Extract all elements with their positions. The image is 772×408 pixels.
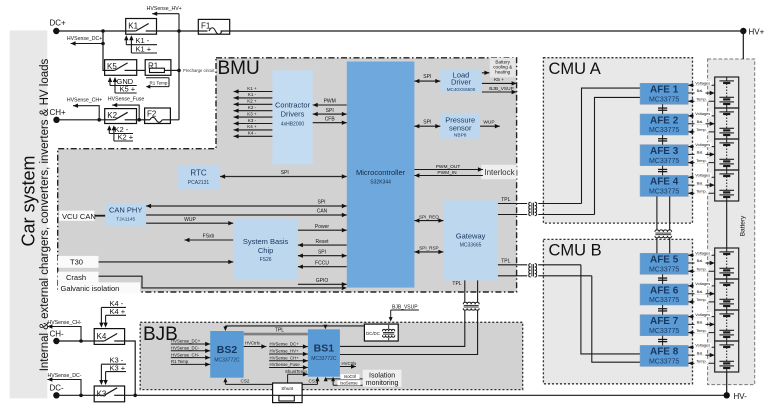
svg-text:K2 +: K2 + <box>247 99 257 104</box>
svg-text:R1 Temp: R1 Temp <box>150 81 168 86</box>
svg-text:HVSense_DC-: HVSense_DC- <box>171 346 200 351</box>
svg-text:Microcontroller: Microcontroller <box>356 168 406 177</box>
svg-text:K1 +: K1 + <box>247 86 257 91</box>
svg-text:AFE 1: AFE 1 <box>650 85 679 96</box>
svg-text:Isolation: Isolation <box>369 372 395 379</box>
svg-text:HVSense_DC-: HVSense_DC- <box>47 373 81 379</box>
svg-text:MC33772C: MC33772C <box>311 356 337 362</box>
svg-text:VCU CAN: VCU CAN <box>62 212 96 221</box>
svg-text:CS2: CS2 <box>241 379 250 384</box>
svg-text:T30: T30 <box>70 258 83 267</box>
svg-text:HV-: HV- <box>734 392 748 401</box>
svg-text:FSxb: FSxb <box>203 234 215 240</box>
svg-text:SPI: SPI <box>326 108 334 114</box>
svg-text:CMU B: CMU B <box>549 242 602 260</box>
svg-text:Drivers: Drivers <box>281 110 305 119</box>
svg-text:Voltages: Voltages <box>695 312 710 317</box>
svg-text:CH+: CH+ <box>50 108 67 117</box>
svg-text:Bal.: Bal. <box>697 320 704 325</box>
svg-text:K2 -: K2 - <box>248 105 257 110</box>
svg-text:Voltages: Voltages <box>695 281 710 286</box>
svg-text:AFE 5: AFE 5 <box>650 255 679 266</box>
svg-text:Temp.: Temp. <box>696 96 707 101</box>
svg-text:CAN: CAN <box>317 209 328 215</box>
svg-text:Voltages: Voltages <box>695 250 710 255</box>
svg-text:Gateway: Gateway <box>456 232 486 241</box>
svg-text:Shunt: Shunt <box>281 386 294 391</box>
svg-text:K3 -: K3 - <box>248 118 257 123</box>
svg-text:TPL: TPL <box>501 258 510 264</box>
svg-text:HVSense_HV+: HVSense_HV+ <box>147 6 182 12</box>
svg-text:PWM_OUT: PWM_OUT <box>436 164 461 170</box>
svg-text:Voltages: Voltages <box>695 173 710 178</box>
svg-text:IsoSense: IsoSense <box>340 380 358 385</box>
svg-text:SPI: SPI <box>423 119 431 125</box>
svg-text:HVSense_HV+: HVSense_HV+ <box>270 349 300 354</box>
svg-text:K2 +: K2 + <box>118 133 134 142</box>
svg-text:AFE 2: AFE 2 <box>650 115 679 126</box>
svg-text:PWM_IN: PWM_IN <box>437 170 457 176</box>
svg-text:Contractor: Contractor <box>275 101 311 110</box>
svg-text:HVCtrls: HVCtrls <box>342 361 357 366</box>
svg-text:SPI_RSP: SPI_RSP <box>419 246 438 251</box>
svg-text:SPI: SPI <box>423 74 431 80</box>
svg-text:System Basis: System Basis <box>243 237 289 246</box>
svg-text:HVSense_CH-: HVSense_CH- <box>47 320 81 326</box>
svg-text:MC33775: MC33775 <box>649 189 679 196</box>
svg-text:Car system: Car system <box>19 155 39 246</box>
svg-text:Bal.: Bal. <box>697 119 704 124</box>
svg-text:SPI: SPI <box>318 249 326 255</box>
svg-text:HVSense_CH-: HVSense_CH- <box>171 352 200 357</box>
svg-text:Voltages: Voltages <box>695 343 710 348</box>
svg-text:Reset: Reset <box>315 239 329 245</box>
svg-text:CH-: CH- <box>50 330 65 339</box>
svg-text:Chip: Chip <box>258 246 273 255</box>
svg-text:Temp.: Temp. <box>696 359 707 364</box>
svg-text:IsoCtrl: IsoCtrl <box>344 374 356 379</box>
svg-text:S32K344: S32K344 <box>370 180 391 186</box>
svg-text:AFE 8: AFE 8 <box>650 347 679 358</box>
svg-text:HVCtrls: HVCtrls <box>245 341 260 346</box>
svg-text:SPI_REQ: SPI_REQ <box>419 214 439 219</box>
svg-text:K1 +: K1 + <box>136 45 152 54</box>
svg-text:AFE 3: AFE 3 <box>650 146 679 157</box>
svg-text:BJB_VSUP: BJB_VSUP <box>489 86 514 92</box>
svg-text:Driver: Driver <box>451 78 472 87</box>
svg-text:K5 +: K5 + <box>120 85 136 94</box>
svg-text:TPL: TPL <box>501 197 510 203</box>
svg-text:AFE 7: AFE 7 <box>650 316 679 327</box>
svg-text:RTC: RTC <box>190 169 207 178</box>
svg-text:CAN PHY: CAN PHY <box>109 206 142 215</box>
svg-text:AFE 4: AFE 4 <box>650 177 679 188</box>
svg-text:K4 -: K4 - <box>248 131 257 136</box>
svg-text:FCCU: FCCU <box>315 260 329 266</box>
svg-text:DC-: DC- <box>50 384 65 393</box>
svg-text:K3: K3 <box>97 389 107 398</box>
svg-text:MC33775: MC33775 <box>649 97 679 104</box>
svg-text:Temp.: Temp. <box>696 297 707 302</box>
svg-text:F1: F1 <box>201 22 211 31</box>
svg-text:SPI: SPI <box>281 170 289 176</box>
svg-text:Bal.: Bal. <box>697 289 704 294</box>
svg-text:K4 +: K4 + <box>247 124 257 129</box>
svg-text:4xHB2000: 4xHB2000 <box>281 122 305 128</box>
svg-text:TPL: TPL <box>275 328 284 334</box>
svg-text:Crash: Crash <box>66 273 86 282</box>
svg-text:HVSense_DC+: HVSense_DC+ <box>270 341 300 346</box>
svg-text:ShuntTemp: ShuntTemp <box>285 369 307 374</box>
svg-text:GPIO: GPIO <box>316 278 329 284</box>
svg-text:K4 +: K4 + <box>110 307 126 316</box>
svg-text:TJA1145: TJA1145 <box>116 217 135 223</box>
svg-text:AFE 6: AFE 6 <box>650 285 679 296</box>
svg-text:PWM: PWM <box>324 99 336 105</box>
svg-text:Voltages: Voltages <box>695 111 710 116</box>
svg-text:R1 Temp: R1 Temp <box>171 359 189 364</box>
svg-text:MC33665: MC33665 <box>460 243 482 249</box>
svg-text:Galvanic isolation: Galvanic isolation <box>61 284 120 293</box>
svg-text:Power: Power <box>315 224 330 230</box>
svg-text:Bal.: Bal. <box>697 150 704 155</box>
svg-text:Voltages: Voltages <box>695 142 710 147</box>
svg-text:DC/DC: DC/DC <box>366 331 380 336</box>
svg-text:HVSense_DC+: HVSense_DC+ <box>171 339 201 344</box>
svg-text:MC33775: MC33775 <box>649 158 679 165</box>
svg-text:Temp.: Temp. <box>696 266 707 271</box>
svg-text:sensor: sensor <box>449 123 472 132</box>
svg-text:HVSense_CH+: HVSense_CH+ <box>67 98 102 104</box>
svg-text:TPL: TPL <box>452 281 461 287</box>
svg-text:K4: K4 <box>97 332 107 341</box>
svg-text:K3 +: K3 + <box>247 111 257 116</box>
svg-text:MC33772C: MC33772C <box>214 358 240 364</box>
svg-text:FS26: FS26 <box>260 257 272 263</box>
svg-text:Temp.: Temp. <box>696 189 707 194</box>
svg-text:HVSense_CH+: HVSense_CH+ <box>270 356 300 361</box>
svg-text:Temp.: Temp. <box>696 158 707 163</box>
svg-text:CS1: CS1 <box>309 379 318 384</box>
svg-text:monitoring: monitoring <box>366 380 399 387</box>
svg-text:Temp.: Temp. <box>696 328 707 333</box>
svg-text:SPI: SPI <box>317 200 325 206</box>
svg-text:MC33775: MC33775 <box>649 297 679 304</box>
svg-text:Bal.: Bal. <box>697 88 704 93</box>
svg-text:CFB: CFB <box>325 116 336 122</box>
svg-text:Battery: Battery <box>740 215 747 236</box>
svg-text:MC33775: MC33775 <box>649 328 679 335</box>
svg-text:DC+: DC+ <box>50 19 67 28</box>
svg-text:BMU: BMU <box>218 58 260 79</box>
svg-text:Interlock: Interlock <box>484 168 515 177</box>
svg-text:K5 +: K5 + <box>494 77 504 83</box>
svg-text:WUP: WUP <box>184 217 196 223</box>
svg-text:HVSense_DC+: HVSense_DC+ <box>67 36 102 42</box>
svg-text:MC40XS6500: MC40XS6500 <box>447 87 476 92</box>
svg-text:MC33775: MC33775 <box>649 127 679 134</box>
svg-text:BS2: BS2 <box>217 344 238 356</box>
svg-text:PCA2131: PCA2131 <box>188 180 210 186</box>
svg-text:NBP8: NBP8 <box>454 133 467 139</box>
svg-text:Voltages: Voltages <box>695 80 710 85</box>
svg-text:BS1: BS1 <box>314 343 335 355</box>
svg-text:K1 -: K1 - <box>248 92 257 97</box>
svg-text:MC33775: MC33775 <box>649 359 679 366</box>
svg-text:Bal.: Bal. <box>697 258 704 263</box>
svg-text:HV+: HV+ <box>749 28 765 37</box>
svg-text:K3 +: K3 + <box>110 363 126 372</box>
svg-text:Precharge circuit: Precharge circuit <box>183 68 215 73</box>
svg-text:Bal.: Bal. <box>697 350 704 355</box>
svg-text:CMU A: CMU A <box>549 60 601 78</box>
svg-text:heating: heating <box>495 70 511 75</box>
svg-text:K1: K1 <box>128 22 138 31</box>
svg-text:Temp.: Temp. <box>696 127 707 132</box>
svg-text:HVSense_Fuse: HVSense_Fuse <box>270 362 301 367</box>
svg-text:Bal.: Bal. <box>697 180 704 185</box>
svg-text:WUP: WUP <box>483 119 494 125</box>
svg-text:BJB_VSUP: BJB_VSUP <box>392 304 418 310</box>
svg-text:HVSense_Fuse: HVSense_Fuse <box>108 97 144 103</box>
svg-text:MC33775: MC33775 <box>649 267 679 274</box>
